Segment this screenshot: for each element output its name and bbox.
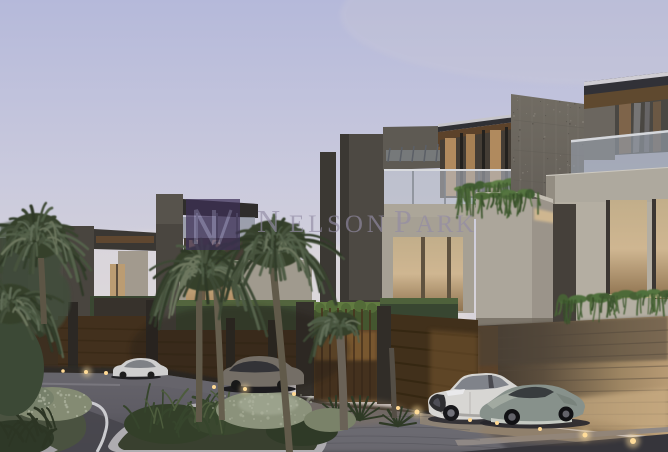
svg-text:P: P [394,203,412,239]
svg-text:N: N [257,203,280,239]
svg-text:ELSON: ELSON [289,211,389,238]
svg-text:ARK: ARK [416,211,477,238]
